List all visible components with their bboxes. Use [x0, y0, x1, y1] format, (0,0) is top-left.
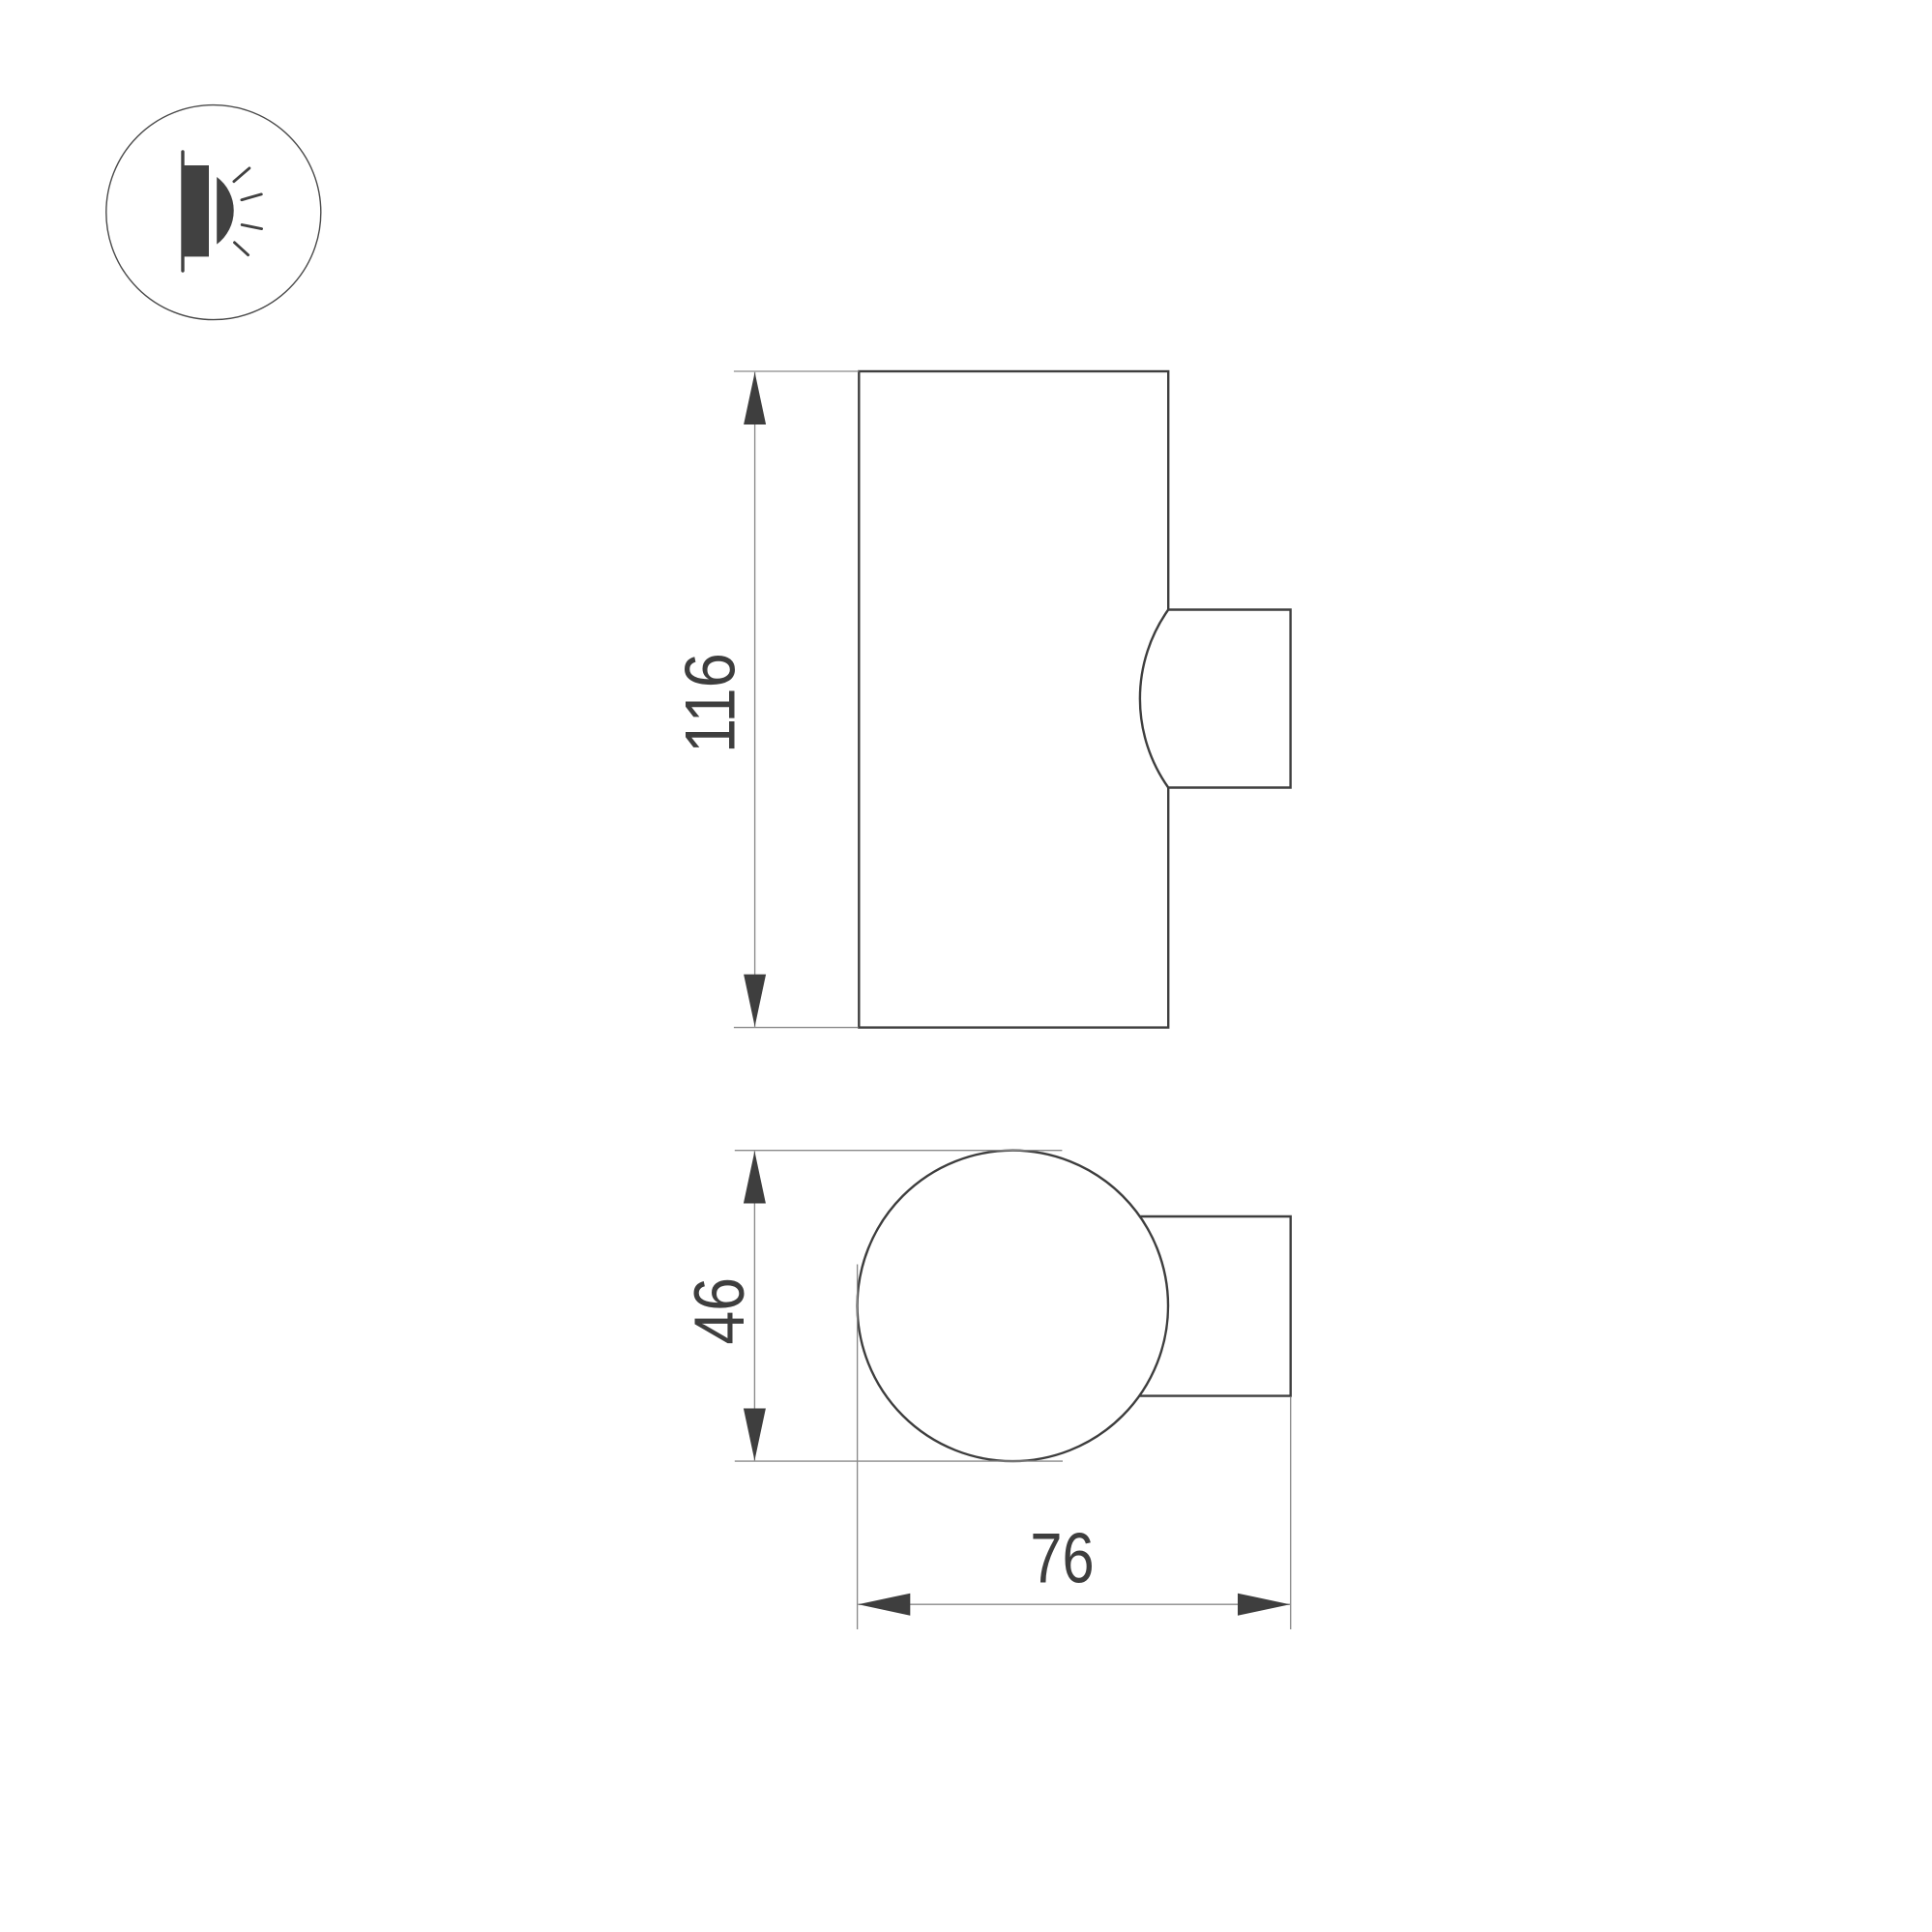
svg-text:76: 76	[1030, 1520, 1094, 1598]
svg-text:46: 46	[681, 1277, 760, 1345]
svg-text:116: 116	[670, 653, 749, 753]
